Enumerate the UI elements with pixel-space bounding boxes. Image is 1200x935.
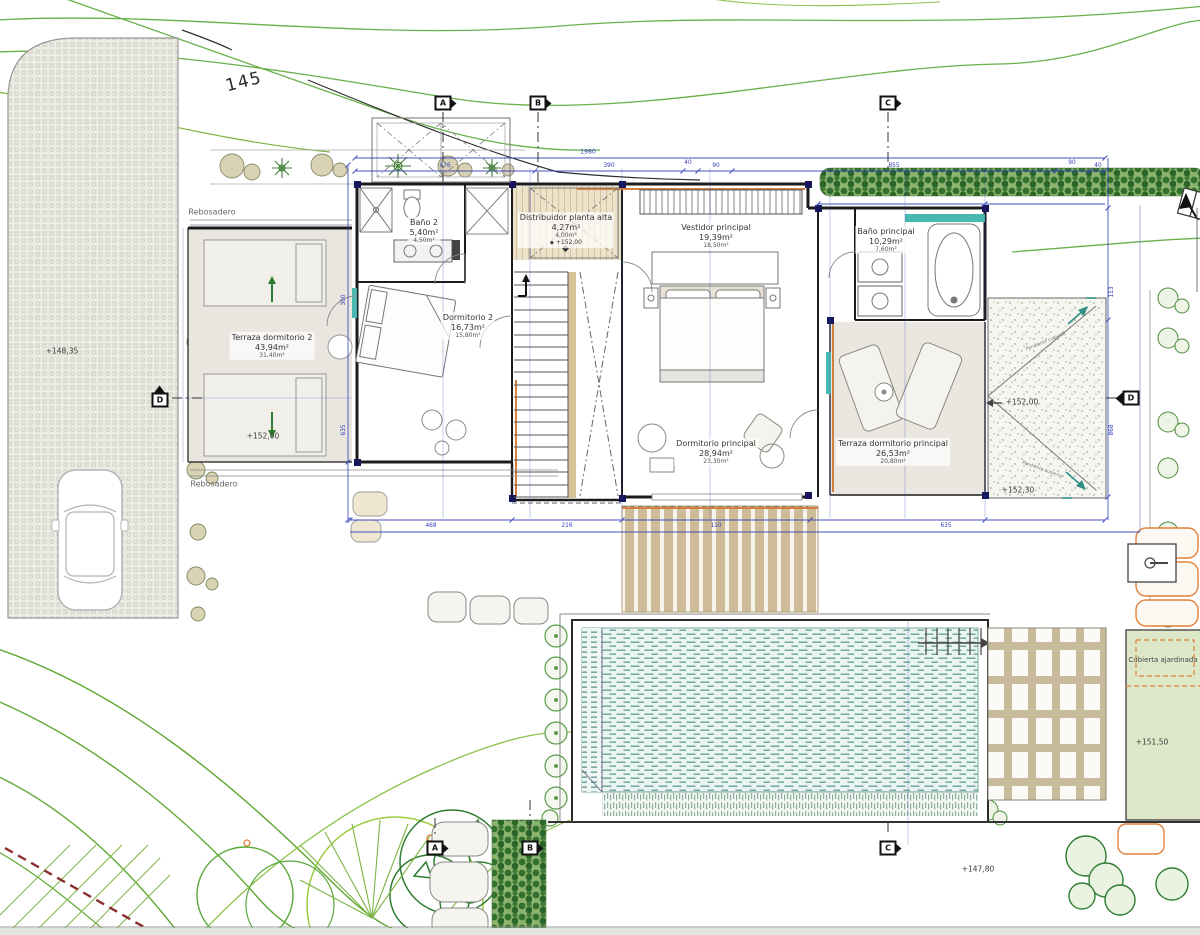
dim-right-seg: 113 — [1109, 286, 1115, 297]
dim-bottom-seg: 468 — [425, 523, 436, 529]
dim-top-seg: 90 — [712, 163, 719, 169]
room-label-dormitorio-principal: Dormitorio principal 28,94m² 23,30m² — [674, 438, 758, 466]
section-marker-a-top: A — [435, 96, 452, 111]
dim-top-seg: 476 — [439, 163, 450, 169]
section-marker-b-bottom: B — [522, 841, 539, 856]
hedge-band — [820, 168, 1200, 196]
section-marker-d-left: D — [152, 393, 169, 408]
dim-right-seg: 868 — [1109, 424, 1115, 435]
pool-area — [0, 506, 1200, 935]
elevation-pergola-upper: +152,00 — [1006, 398, 1039, 407]
dim-top-seg: 90 — [1068, 160, 1075, 166]
room-label-distribuidor: Distribuidor planta alta 4,27m² 4,00m² +… — [518, 212, 614, 248]
dim-bottom-seg: 110 — [710, 523, 721, 529]
bed-principal — [644, 286, 780, 382]
car — [52, 470, 128, 610]
room-label-terraza2: Terraza dormitorio 2 43,94m² 31,40m² — [230, 332, 315, 360]
note-cubierta-ajardinada: Cubierta ajardinada — [1128, 656, 1197, 664]
note-rebosadero-upper: Rebosadero — [188, 208, 235, 217]
room-label-bano2: Baño 2 5,40m² 4,50m² — [408, 217, 441, 245]
section-marker-d-right: D — [1123, 391, 1140, 406]
toilet-icon — [404, 190, 420, 219]
section-marker-b-top: B — [530, 96, 547, 111]
level-marker-icon — [550, 240, 554, 247]
shower-icon — [360, 188, 392, 232]
elevation-terraza2: +152,00 — [247, 432, 280, 441]
section-marker-c-top: C — [880, 96, 897, 111]
floor-plan-canvas: 145 A B C A B C D D Baño 2 5,40m² 4,50m²… — [0, 0, 1200, 935]
dim-top-seg: 390 — [603, 163, 614, 169]
dim-total-width: 1980 — [580, 149, 596, 156]
vestidor-island — [652, 252, 778, 284]
dim-left-seg: 635 — [341, 424, 347, 435]
room-label-bano-principal: Baño principal 10,29m² 7,60m² — [855, 226, 916, 254]
elevation-ground: +147,80 — [962, 865, 995, 874]
dim-left-seg: 300 — [341, 294, 347, 305]
dim-top-seg: 40 — [1094, 163, 1101, 169]
room-label-terraza-principal: Terraza dormitorio principal 26,53m² 20,… — [836, 438, 950, 466]
parking-area — [8, 38, 178, 618]
section-marker-a-bottom: A — [427, 841, 444, 856]
pergola-lower — [988, 628, 1106, 800]
section-marker-c-bottom: C — [880, 841, 897, 856]
dim-bottom-seg: 216 — [561, 523, 572, 529]
dim-top-seg: 855 — [888, 163, 899, 169]
wood-deck — [622, 506, 818, 612]
closet-box — [466, 188, 508, 234]
elevation-parking: +148,35 — [46, 347, 79, 356]
elevation-green-roof: +151,50 — [1136, 738, 1169, 747]
room-label-dormitorio2: Dormitorio 2 16,73m² 15,80m² — [441, 312, 495, 340]
note-rebosadero-lower: Rebosadero — [190, 480, 237, 489]
dim-bottom-seg: 635 — [940, 523, 951, 529]
elevation-pergola-lower: +152,30 — [1002, 486, 1035, 495]
bathtub-icon — [928, 224, 980, 316]
plan-linework — [0, 0, 1200, 935]
room-label-vestidor: Vestidor principal 19,39m² 18,50m² — [679, 222, 753, 250]
drain-box-icon — [1128, 544, 1176, 582]
wardrobe-strip — [640, 190, 802, 214]
dim-top-seg: 40 — [684, 160, 691, 166]
